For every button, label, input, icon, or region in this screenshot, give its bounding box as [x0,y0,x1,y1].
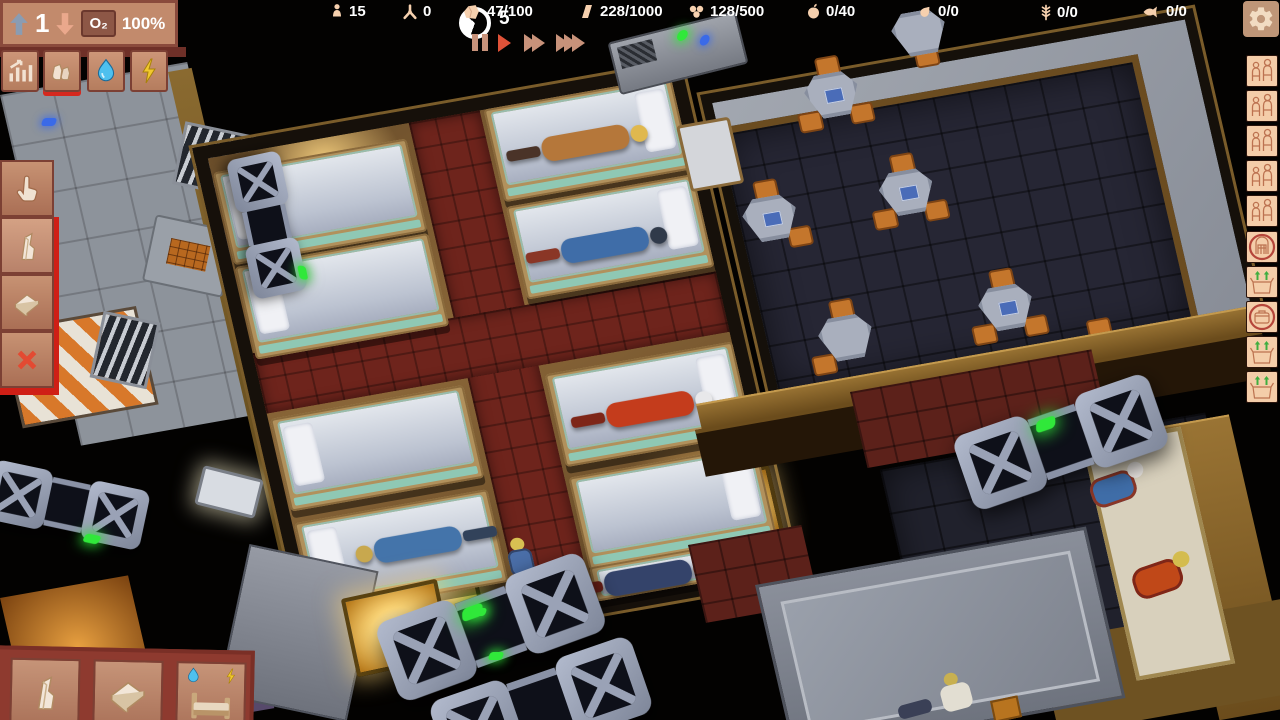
build-floor-tool-button[interactable] [0,274,54,331]
power-overlay-button[interactable] [130,50,168,92]
oxygen-label: O₂ [81,10,115,37]
crew-group-icon [1248,57,1276,85]
gear-icon [1247,5,1275,33]
tool-selection-stripe [0,388,59,395]
resource-metal-plates: 228/1000 [578,3,663,20]
container-button[interactable] [1246,301,1278,333]
stats-overlay-button[interactable] [1,50,39,92]
water-requirement-icon [186,666,200,684]
bed-icon [187,688,234,720]
airlock-door[interactable] [0,459,151,551]
person-icon [330,3,344,20]
floor-tile-icon [107,676,150,713]
metal-sheet-icon [578,3,595,20]
hand-pointer-icon [12,174,42,204]
resource-ore: 128/500 [688,3,764,20]
wheat-icon [1040,3,1052,21]
bed-option-button[interactable] [175,661,246,720]
level-value: 1 [35,8,49,39]
ore-icon [688,4,705,19]
lightning-bolt-icon [140,58,158,84]
crew-group-button[interactable] [1246,125,1278,157]
cafeteria-table[interactable] [965,271,1048,344]
resources-overlay-button[interactable] [43,50,81,92]
wall-block-icon [27,672,64,713]
level-up-button[interactable] [9,12,29,36]
fastest-forward-button[interactable] [556,34,585,52]
play-button[interactable] [498,34,511,52]
floor-tile-option-button[interactable] [92,659,163,720]
pot-circle-icon [1248,303,1276,331]
supply-box-button[interactable] [1246,266,1278,298]
build-options-toolbar [0,645,255,720]
stone-icon [463,4,482,20]
dome-building-circle-icon [1248,233,1276,261]
crew-group-button[interactable] [1246,160,1278,192]
fast-forward-button[interactable] [524,34,545,52]
settings-button[interactable] [1243,1,1279,37]
water-overlay-button[interactable] [87,50,125,92]
resource-food: 0/40 [806,3,855,20]
select-tool-button[interactable] [0,160,54,217]
drop-icon [915,1,936,22]
stones-icon [49,58,75,84]
open-box-green-arrows-icon [1248,268,1276,296]
resource-fish: 0/0 [1142,3,1187,20]
power-requirement-icon [225,667,236,685]
supply-box-button[interactable] [1246,336,1278,368]
tool-selection-stripe [54,217,59,388]
drone-icon [402,4,418,20]
pause-button[interactable] [472,34,492,51]
wall-lamp [194,465,264,519]
crew-group-icon [1248,197,1276,225]
level-down-button[interactable] [55,12,75,36]
crew-group-icon [1248,162,1276,190]
oxygen-value: 100% [122,14,165,34]
red-x-icon [13,346,41,374]
crew-group-button[interactable] [1246,195,1278,227]
resource-colonists: 15 [330,3,366,20]
open-box-green-arrows-icon [1248,338,1276,366]
apple-icon [806,3,821,20]
water-drop-icon [95,58,117,84]
cafeteria-table[interactable] [805,302,888,375]
game-viewport: 1 O₂ 100% 5 15 0 47/100 228/1000 128/500… [0,0,1280,720]
crate[interactable] [990,695,1022,720]
cafeteria-table[interactable] [729,182,812,255]
crew-group-button[interactable] [1246,55,1278,87]
crew-group-button[interactable] [1246,90,1278,122]
chart-bars-arrow-icon [6,57,34,85]
resource-water: 0/0 [918,3,959,20]
resource-drones: 0 [402,3,431,20]
cancel-tool-button[interactable] [0,331,54,388]
crew-group-icon [1248,127,1276,155]
wall-block-option-button[interactable] [9,658,80,720]
resource-wheat: 0/0 [1040,3,1078,21]
cafeteria-table[interactable] [791,59,874,132]
level-oxygen-panel: 1 O₂ 100% [0,0,178,47]
supply-box-button[interactable] [1246,371,1278,403]
build-block-tool-button[interactable] [0,217,54,274]
floor-tile-icon [12,290,42,316]
habitat-button[interactable] [1246,231,1278,263]
wall-block-icon [12,230,42,262]
resource-stone: 47/100 [463,3,533,20]
cafeteria-table[interactable] [866,156,949,229]
fish-icon [1142,5,1161,19]
crew-group-icon [1248,92,1276,120]
open-box-green-arrows-icon [1248,373,1276,401]
